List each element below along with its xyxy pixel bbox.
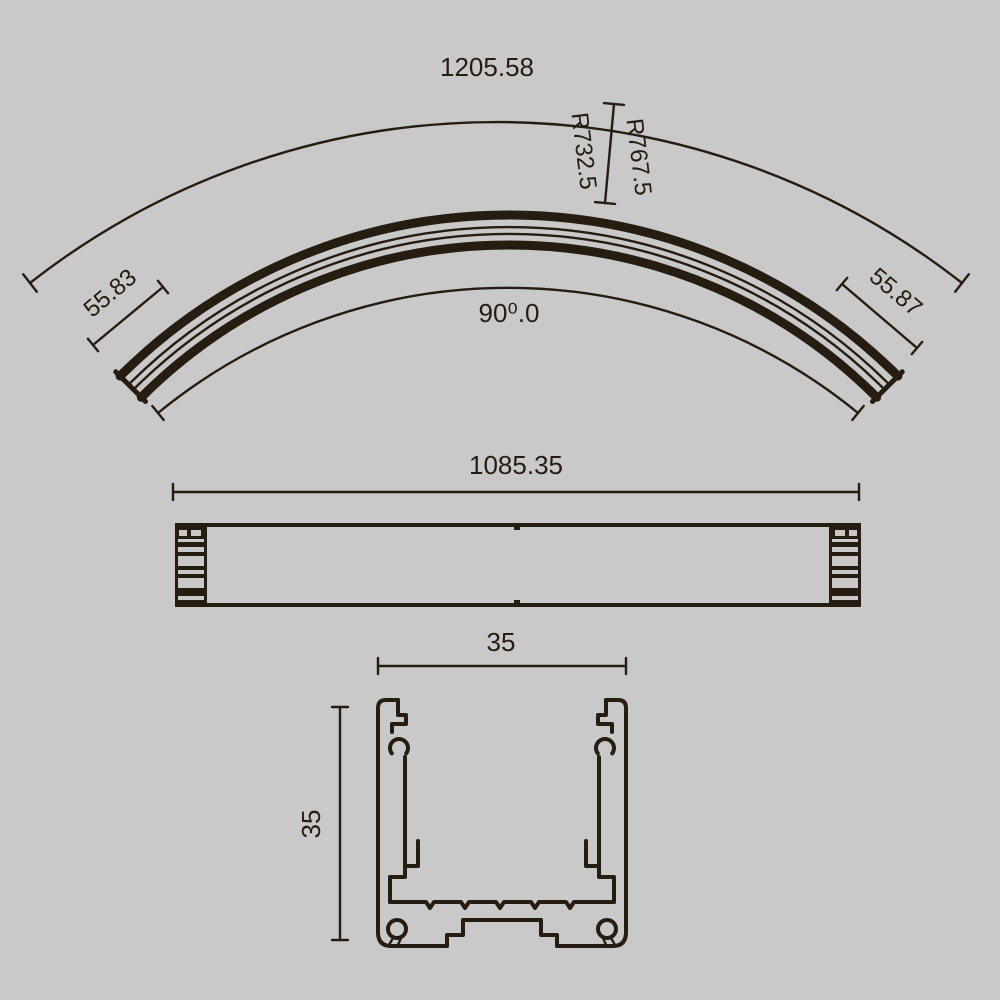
profile-end-cap-left [116,372,146,402]
dim-chord: 1205.58 [23,52,969,292]
curved-profile-view: 1205.58 R767.5 R732.5 90⁰.0 55.83 55.87 [23,52,969,420]
technical-drawing-page: 1205.58 R767.5 R732.5 90⁰.0 55.83 55.87 [0,0,1000,1000]
profile-end-cap-right [873,372,903,402]
connector-cap-left [175,523,207,607]
section-outer-outline [378,700,626,946]
profile-arc-outer [120,215,898,376]
label-arc-angle: 90⁰.0 [478,298,539,328]
dim-section-height: 35 [296,707,348,940]
dim-end-left: 55.83 [79,264,168,351]
side-profile-view: 1085.35 [173,450,861,607]
label-radius-outer: R767.5 [620,117,656,197]
label-radius-inner: R732.5 [565,111,601,191]
section-right-wall-features [586,700,614,902]
side-seam-top [514,526,520,530]
label-section-width: 35 [487,627,516,657]
profile-dimension-drawing: 1205.58 R767.5 R732.5 90⁰.0 55.83 55.87 [0,0,1000,1000]
section-clip-pocket-right [596,739,614,753]
label-section-height: 35 [296,810,326,839]
dim-radii: R767.5 R732.5 [565,103,656,204]
label-length: 1085.35 [469,450,563,480]
connector-cap-right [829,523,861,607]
cross-section-view: 35 35 [296,627,626,946]
label-end-width-left: 55.83 [79,264,142,323]
dim-length: 1085.35 [173,450,859,500]
section-serrated-shelf [390,902,614,908]
section-keyhole-left [388,920,406,945]
side-seam-bottom [514,600,520,604]
dim-section-width: 35 [378,627,626,674]
label-chord-length: 1205.58 [440,52,534,82]
dim-end-right: 55.87 [837,263,928,354]
section-keyhole-right [598,920,616,945]
section-clip-pocket-left [390,739,408,753]
label-end-width-right: 55.87 [864,263,927,322]
section-left-wall-features [390,700,418,902]
